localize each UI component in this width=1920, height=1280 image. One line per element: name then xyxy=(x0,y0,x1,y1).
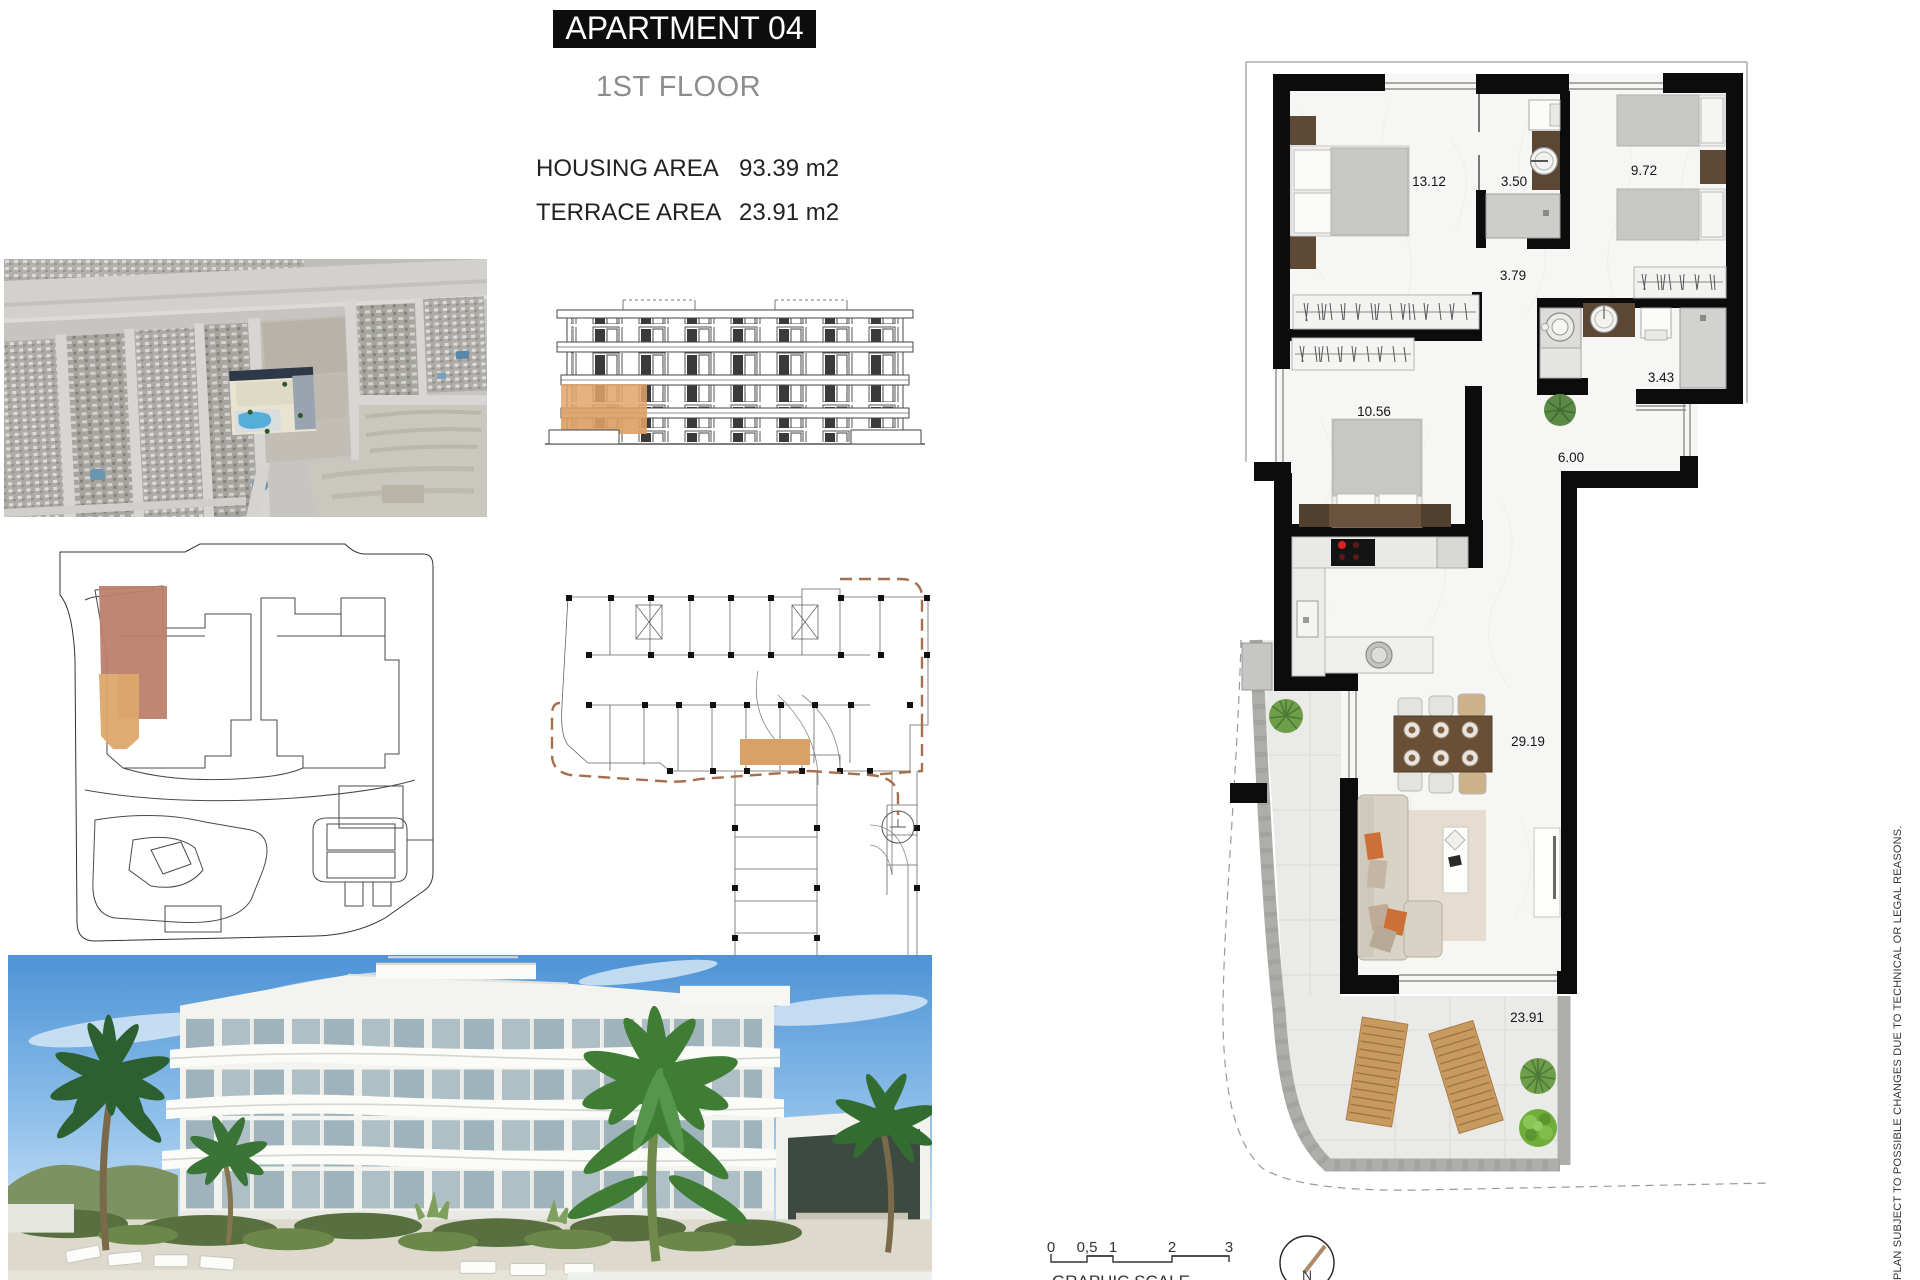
svg-text:0,5: 0,5 xyxy=(1077,1239,1098,1256)
svg-text:3.50: 3.50 xyxy=(1501,174,1527,189)
svg-text:6.00: 6.00 xyxy=(1558,450,1584,465)
svg-text:2: 2 xyxy=(1168,1239,1176,1256)
svg-text:29.19: 29.19 xyxy=(1511,734,1545,749)
svg-text:3: 3 xyxy=(1225,1239,1233,1256)
svg-text:13.12: 13.12 xyxy=(1412,174,1446,189)
svg-text:0: 0 xyxy=(1047,1239,1055,1256)
svg-text:N: N xyxy=(1302,1267,1312,1280)
svg-text:1: 1 xyxy=(1109,1239,1117,1256)
svg-text:10.56: 10.56 xyxy=(1357,404,1391,419)
svg-text:3.79: 3.79 xyxy=(1500,268,1526,283)
svg-text:23.91: 23.91 xyxy=(1510,1010,1544,1025)
svg-text:GRAPHIC SCALE: GRAPHIC SCALE xyxy=(1052,1272,1190,1280)
svg-text:3.43: 3.43 xyxy=(1648,370,1674,385)
svg-text:9.72: 9.72 xyxy=(1631,163,1657,178)
